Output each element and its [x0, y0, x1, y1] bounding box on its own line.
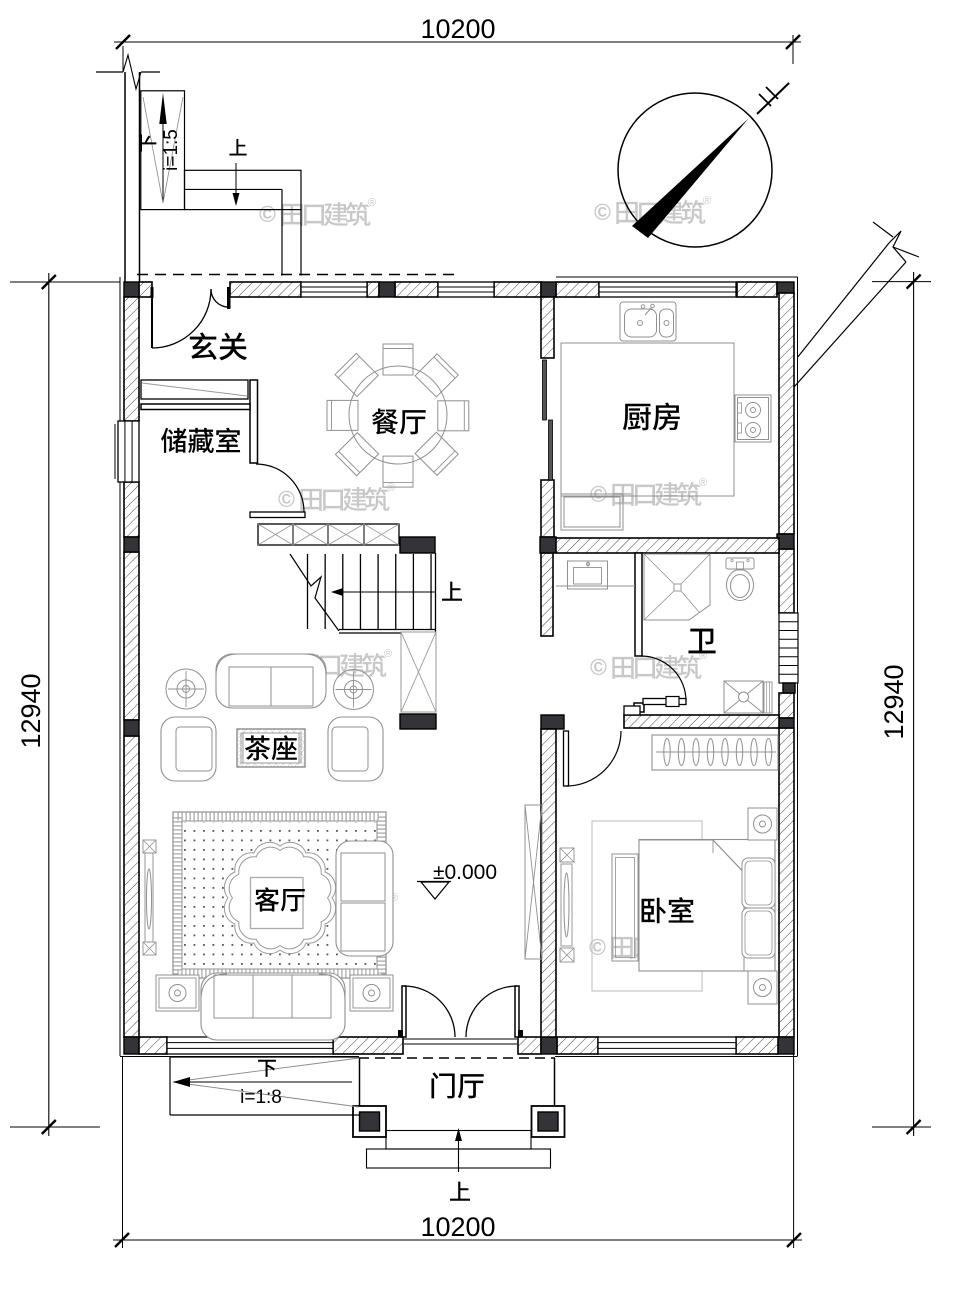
svg-text:±0.000: ±0.000: [433, 861, 497, 884]
svg-text:©: ©: [594, 199, 611, 225]
svg-text:i=1:5: i=1:5: [161, 129, 182, 171]
svg-text:©: ©: [278, 486, 295, 512]
svg-text:®: ®: [368, 197, 376, 209]
svg-text:®: ®: [703, 195, 711, 207]
svg-text:®: ®: [384, 648, 392, 660]
svg-text:10200: 10200: [420, 1212, 495, 1242]
svg-text:©: ©: [590, 654, 607, 680]
svg-text:i=1:8: i=1:8: [240, 1087, 282, 1108]
svg-text:®: ®: [699, 477, 707, 489]
svg-text:®: ®: [387, 482, 395, 494]
svg-text:10200: 10200: [420, 14, 495, 44]
svg-text:12940: 12940: [16, 673, 46, 748]
svg-text:12940: 12940: [879, 664, 909, 739]
svg-text:©: ©: [259, 201, 276, 227]
